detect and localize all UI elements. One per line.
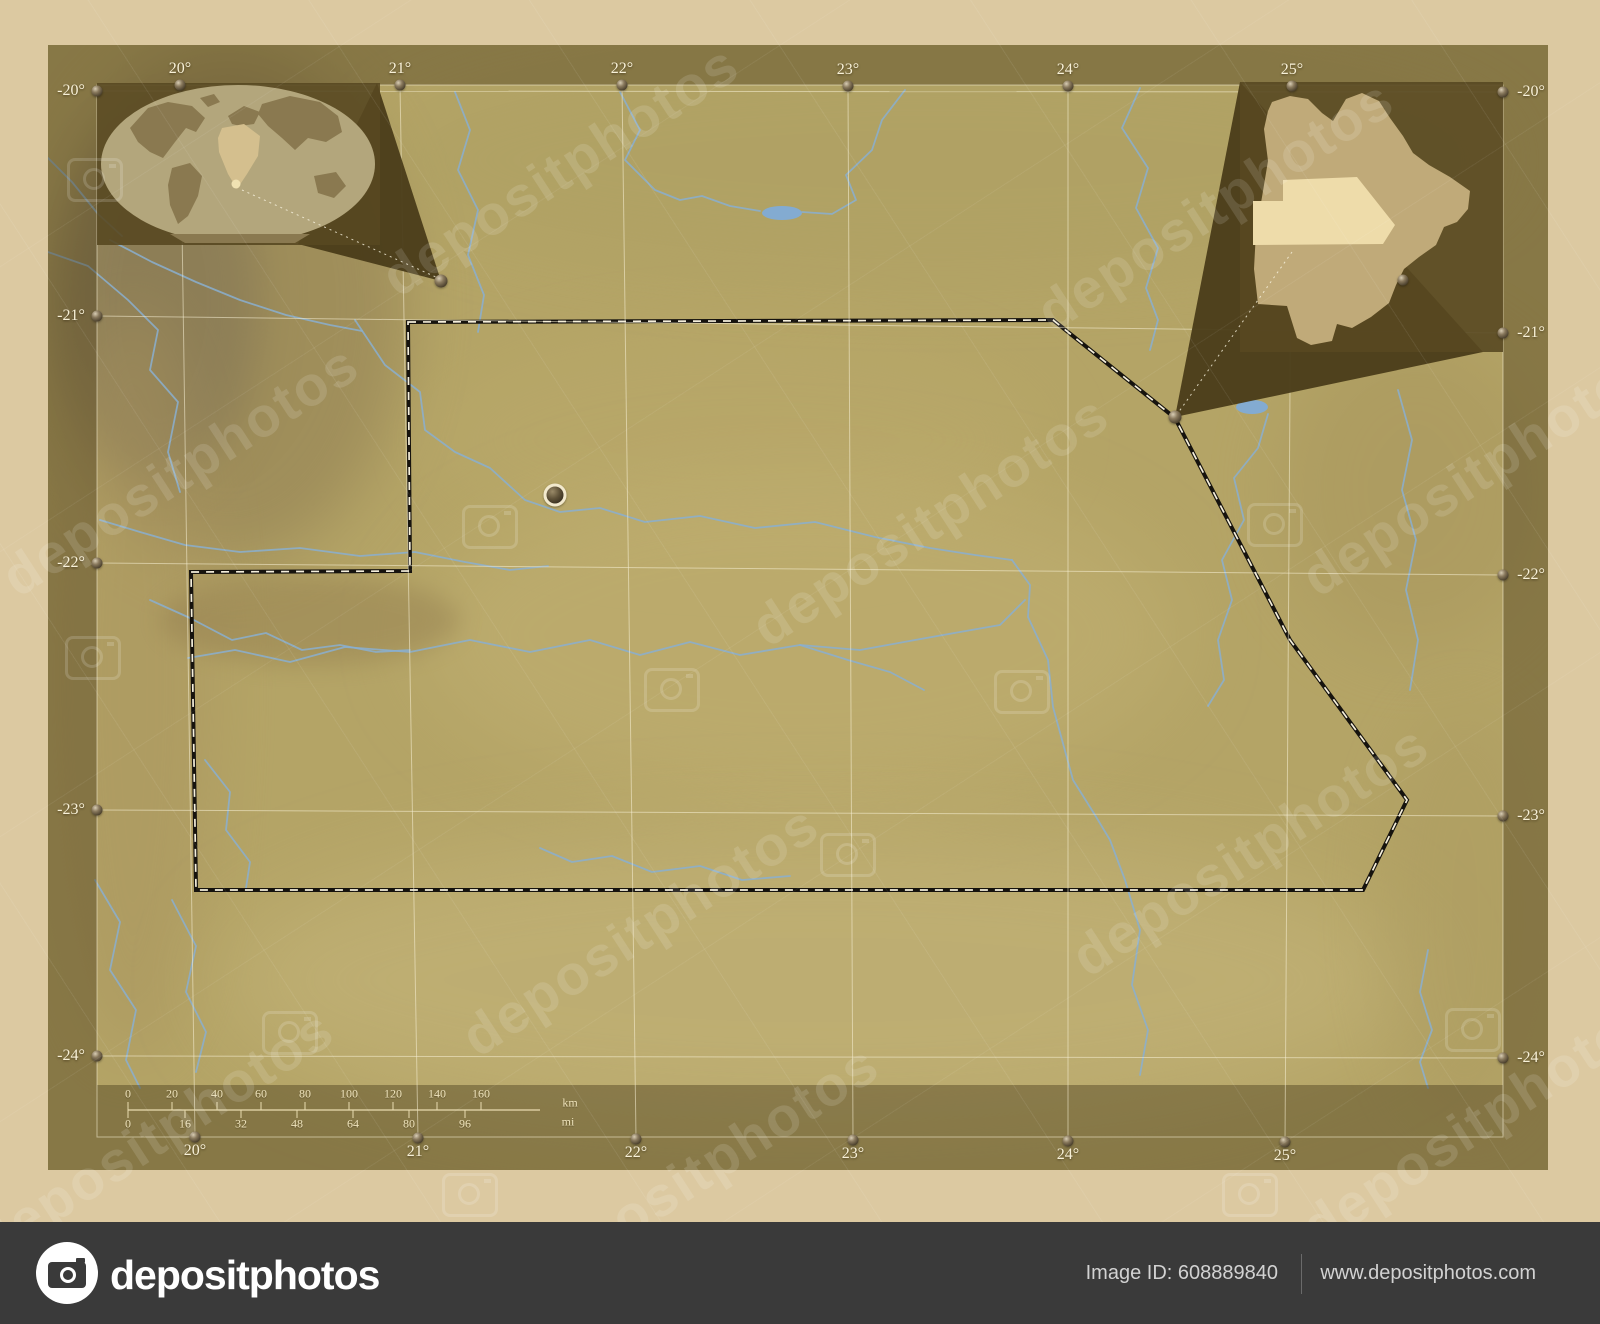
river (1122, 88, 1158, 350)
right-axis-label: -24° (1517, 1049, 1545, 1067)
website-link[interactable]: www.depositphotos.com (1320, 1262, 1536, 1285)
depositphotos-camera-logo-icon[interactable] (36, 1242, 98, 1304)
bottom-axis-tick-sphere (1280, 1137, 1291, 1148)
river (800, 645, 924, 690)
botswana-inset-pin (1169, 411, 1182, 424)
scalebar-mi-label: 0 (125, 1117, 131, 1132)
bottom-axis-tick-sphere (631, 1134, 642, 1145)
right-axis-tick-sphere (1498, 87, 1509, 98)
left-axis-tick-sphere (92, 86, 103, 97)
parallel-line (97, 810, 1503, 816)
top-axis-label: 25° (1281, 61, 1303, 79)
scalebar-km-label: 0 (125, 1087, 131, 1102)
river (172, 900, 206, 1072)
top-axis-tick-sphere (843, 81, 854, 92)
scalebar-km-label: 100 (340, 1087, 358, 1102)
scalebar-km-label: 140 (428, 1087, 446, 1102)
image-id-text: Image ID: 608889840 (1086, 1262, 1278, 1285)
world-inset-pin (435, 275, 448, 288)
right-axis-tick-sphere (1498, 811, 1509, 822)
right-axis-label: -23° (1517, 807, 1545, 825)
left-axis-tick-sphere (92, 1051, 103, 1062)
right-axis-tick-sphere (1498, 328, 1509, 339)
bottom-axis-label: 23° (842, 1145, 864, 1163)
river (100, 520, 548, 570)
scalebar-km-label: 80 (299, 1087, 311, 1102)
river (205, 760, 250, 888)
footer-bar: depositphotos Image ID: 608889840 www.de… (0, 1222, 1600, 1324)
left-axis-tick-sphere (92, 311, 103, 322)
left-axis-label: -21° (57, 307, 85, 325)
bottom-axis-tick-sphere (413, 1133, 424, 1144)
left-axis-label: -23° (57, 801, 85, 819)
top-axis-label: 20° (169, 60, 191, 78)
watermark-camera-icon (442, 1173, 498, 1217)
river (802, 90, 905, 214)
right-axis-tick-sphere (1498, 1053, 1509, 1064)
river (540, 848, 790, 880)
top-axis-tick-sphere (395, 80, 406, 91)
scalebar-km-label: 160 (472, 1087, 490, 1102)
bottom-axis-label: 25° (1274, 1147, 1296, 1165)
bottom-axis-tick-sphere (190, 1132, 201, 1143)
inset-capital-marker (1398, 275, 1409, 286)
left-axis-label: -22° (57, 554, 85, 572)
left-axis-tick-sphere (92, 805, 103, 816)
scalebar-km-label: 20 (166, 1087, 178, 1102)
footer-divider (1301, 1254, 1302, 1294)
bottom-axis-label: 24° (1057, 1146, 1079, 1164)
river (1208, 414, 1268, 706)
top-axis-tick-sphere (1287, 81, 1298, 92)
scalebar-mi-label: 48 (291, 1117, 303, 1132)
meridian-line (848, 86, 853, 1140)
top-axis-label: 22° (611, 60, 633, 78)
top-axis-label: 24° (1057, 61, 1079, 79)
right-axis-tick-sphere (1498, 570, 1509, 581)
scalebar-mi-label: 32 (235, 1117, 247, 1132)
scalebar-km-label: 60 (255, 1087, 267, 1102)
scalebar-km-label: 40 (211, 1087, 223, 1102)
left-axis-label: -24° (57, 1047, 85, 1065)
scalebar-km-unit: km (562, 1096, 577, 1111)
bottom-axis-label: 22° (625, 1144, 647, 1162)
top-axis-tick-sphere (1063, 81, 1074, 92)
continent-shape (170, 234, 310, 243)
map-vector-layer (48, 45, 1548, 1170)
river (620, 92, 760, 211)
parallel-line (97, 1056, 1503, 1058)
top-axis-tick-sphere (617, 80, 628, 91)
bottom-axis-label: 21° (407, 1143, 429, 1161)
right-axis-label: -22° (1517, 566, 1545, 584)
right-axis-label: -20° (1517, 83, 1545, 101)
watermark-camera-icon (1222, 1173, 1278, 1217)
river (150, 600, 410, 652)
lake (762, 206, 802, 220)
scalebar-mi-label: 80 (403, 1117, 415, 1132)
left-axis-tick-sphere (92, 558, 103, 569)
river (188, 600, 1025, 662)
top-axis-tick-sphere (175, 80, 186, 91)
top-axis-label: 23° (837, 61, 859, 79)
bottom-axis-tick-sphere (1063, 1136, 1074, 1147)
camera-flash-icon (76, 1258, 85, 1263)
district-town-marker (544, 484, 567, 507)
camera-lens-icon (60, 1267, 76, 1283)
scalebar-km-label: 120 (384, 1087, 402, 1102)
scalebar-mi-label: 64 (347, 1117, 359, 1132)
river (355, 320, 1012, 560)
scalebar-mi-unit: mi (562, 1115, 575, 1130)
right-axis-label: -21° (1517, 324, 1545, 342)
meridian-line (622, 85, 636, 1139)
scalebar-mi-label: 16 (179, 1117, 191, 1132)
top-axis-label: 21° (389, 60, 411, 78)
bottom-axis-tick-sphere (848, 1135, 859, 1146)
depositphotos-logo-text[interactable]: depositphotos (110, 1252, 379, 1299)
country-location-dot (232, 180, 241, 189)
left-axis-label: -20° (57, 82, 85, 100)
river (455, 92, 484, 332)
bottom-axis-label: 20° (184, 1142, 206, 1160)
scalebar-mi-label: 96 (459, 1117, 471, 1132)
camera-body-icon (48, 1262, 86, 1288)
river (1012, 560, 1148, 1075)
stock-map-page: { "page": {"background": "#dcc9a1"}, "fo… (0, 0, 1600, 1324)
river (1420, 950, 1432, 1088)
river (1398, 390, 1418, 690)
